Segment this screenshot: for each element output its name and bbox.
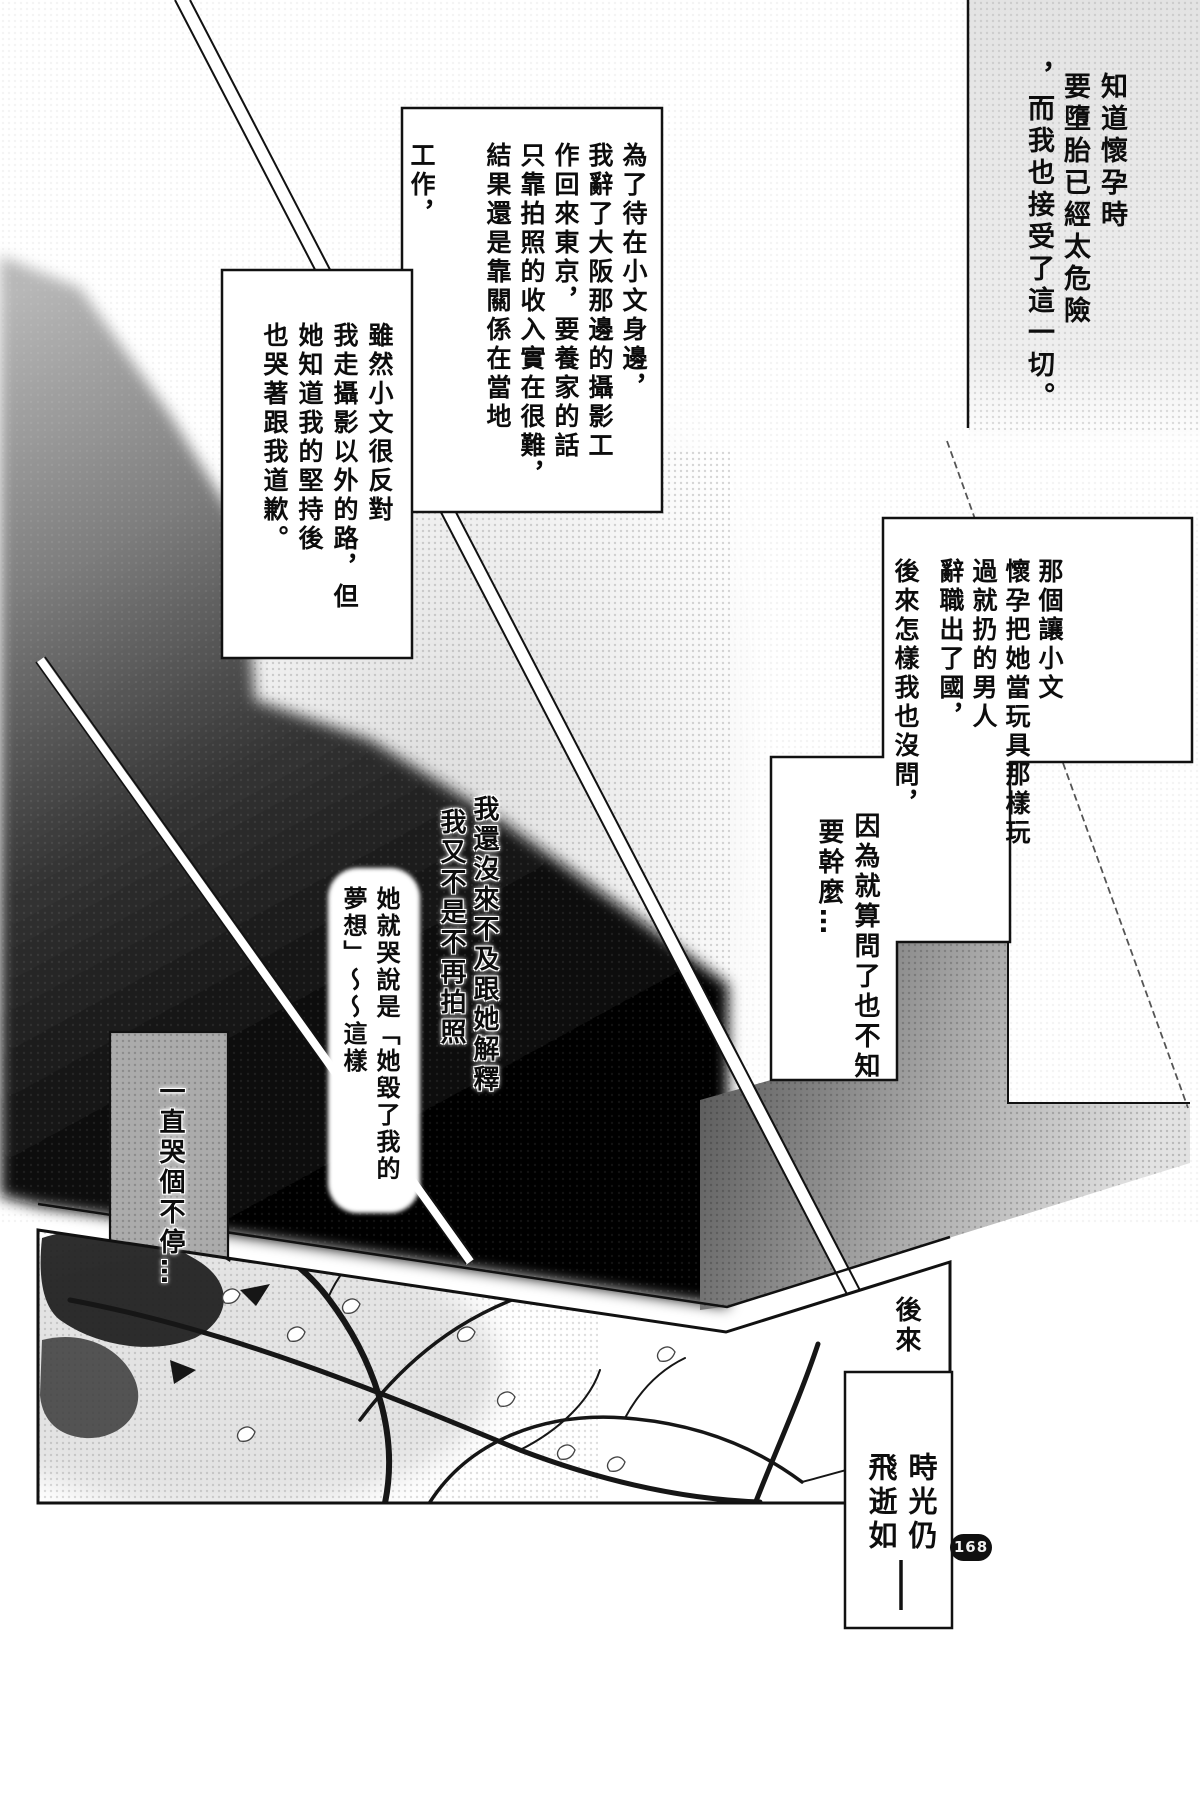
narration-man-col-3: 過就扔的男人 xyxy=(971,558,996,732)
narration-man-col-1: 那個讓小文 xyxy=(1037,558,1062,703)
caption-time-col-2: 飛逝如 xyxy=(866,1452,895,1554)
narration-work-col-2: 我辭了大阪那邊的攝影工 xyxy=(587,142,612,461)
narration-work-col-6: 工作， xyxy=(409,142,434,229)
narration-top-right-col-3: ，而我也接受了這一切。 xyxy=(1025,62,1052,414)
manga-page: 知道懷孕時 要墮胎已經太危險 ，而我也接受了這一切。 為了待在小文身邊， 我辭了… xyxy=(0,0,1200,1814)
narration-top-right-col-2: 要墮胎已經太危險 xyxy=(1061,72,1088,328)
narration-oppose-col-3: 她知道我的堅持後 xyxy=(297,322,322,554)
narration-top-right-col-1: 知道懷孕時 xyxy=(1098,72,1125,232)
narration-why-col-1: 因為就算問了也不知 xyxy=(852,812,878,1082)
narration-why-col-2: 要幹麼… xyxy=(816,818,842,938)
narration-oppose-col-4: 也哭著跟我道歉。 xyxy=(262,322,287,554)
caption-later-col: 後來 xyxy=(893,1296,919,1356)
narration-man-col-2: 懷孕把她當玩具那樣玩 xyxy=(1004,558,1029,848)
caption-time-col-1: 時光仍 xyxy=(906,1452,935,1554)
narration-explain-col-1: 我還沒來不及跟她解釋 xyxy=(471,795,497,1095)
narration-oppose-col-2: 我走攝影以外的路，但 xyxy=(332,322,357,612)
narration-work-col-3: 作回來東京，要養家的話 xyxy=(553,142,578,461)
narration-work-col-5: 結果還是靠關係在當地 xyxy=(485,142,510,432)
narration-crying-col: 一直哭個不停… xyxy=(157,1078,183,1288)
narration-explain-col-2: 我又不是不再拍照 xyxy=(438,808,464,1048)
speech-cry-col-2: 夢想」～～這樣 xyxy=(341,886,365,1075)
narration-man-col-4: 辭職出了國， xyxy=(938,558,963,732)
narration-oppose-col-1: 雖然小文很反對 xyxy=(367,322,392,525)
speech-cry-col-1: 她就哭說是「她毀了我的 xyxy=(374,886,398,1183)
narration-work-col-4: 只靠拍照的收入實在很難， xyxy=(519,142,544,490)
narration-work-col-1: 為了待在小文身邊， xyxy=(621,142,646,403)
page-number-badge: 168 xyxy=(950,1534,992,1561)
narration-man-col-5: 後來怎樣我也沒問， xyxy=(893,558,918,819)
